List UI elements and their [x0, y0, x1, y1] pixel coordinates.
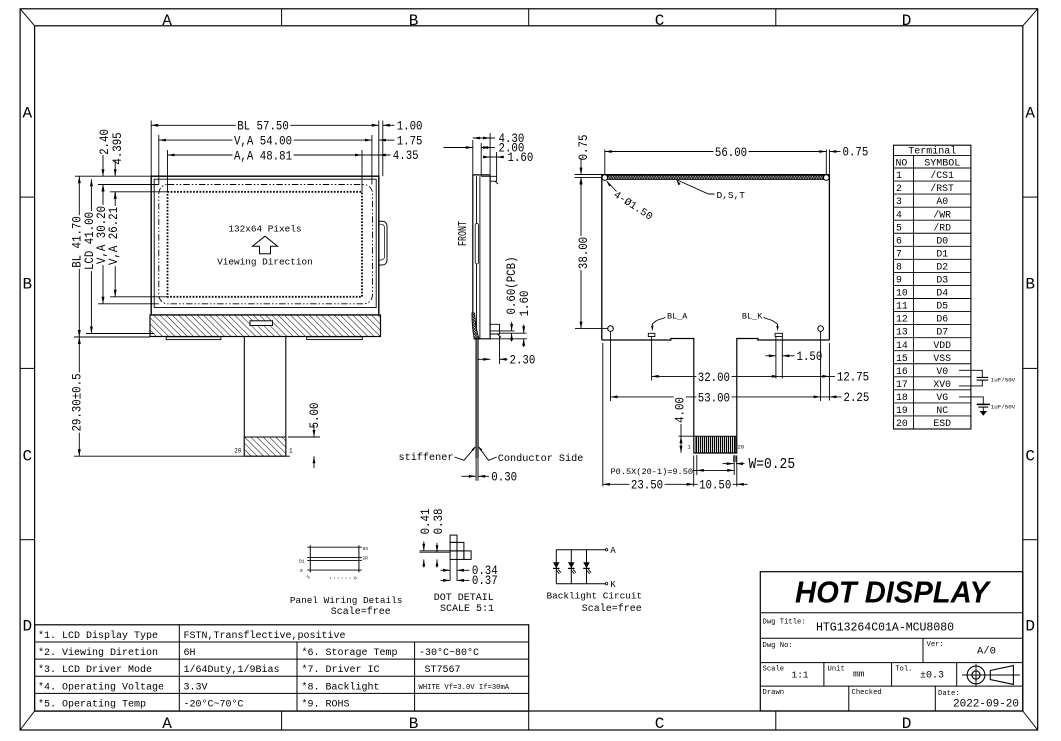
svg-text:Drawn: Drawn: [763, 689, 785, 697]
svg-text:D2: D2: [936, 261, 948, 272]
svg-text:1: 1: [896, 170, 902, 181]
svg-text:NC: NC: [936, 405, 948, 416]
svg-text:A: A: [22, 105, 32, 123]
svg-text:38.00: 38.00: [576, 237, 591, 269]
svg-text:A: A: [610, 546, 616, 556]
svg-text:1uF/50V: 1uF/50V: [991, 377, 1016, 384]
svg-text:P0.5X(20-1)=9.50: P0.5X(20-1)=9.50: [611, 467, 694, 477]
svg-text:HOT DISPLAY: HOT DISPLAY: [795, 575, 992, 610]
svg-text:A0: A0: [936, 196, 948, 207]
svg-text:V,A 54.00: V,A 54.00: [234, 134, 292, 149]
svg-text:10.50: 10.50: [699, 478, 731, 493]
svg-text:FRONT: FRONT: [457, 221, 470, 246]
svg-text:13: 13: [896, 327, 908, 338]
svg-text:SCALE 5:1: SCALE 5:1: [440, 604, 494, 615]
svg-text:WHITE Vf=3.0V If=30mA: WHITE Vf=3.0V If=30mA: [419, 684, 510, 692]
svg-text:D3: D3: [936, 275, 948, 286]
svg-text:1.00: 1.00: [397, 119, 423, 134]
svg-text:C: C: [1025, 448, 1035, 466]
svg-text:4: 4: [896, 209, 902, 220]
svg-text:DOT DETAIL: DOT DETAIL: [434, 593, 494, 604]
svg-text:Tol.: Tol.: [895, 665, 912, 673]
svg-text:±0.3: ±0.3: [920, 671, 944, 682]
svg-text:*6. Storage Temp: *6. Storage Temp: [302, 647, 398, 659]
svg-text:Scale=free: Scale=free: [331, 606, 391, 618]
svg-text:Scale=free: Scale=free: [582, 603, 642, 615]
svg-text:D: D: [1025, 618, 1035, 636]
svg-text:Scale: Scale: [763, 665, 785, 673]
svg-text:14: 14: [896, 340, 908, 351]
svg-text:D1: D1: [299, 559, 305, 565]
svg-text:2R: 2R: [363, 556, 369, 562]
svg-text:BL 57.50: BL 57.50: [237, 119, 289, 134]
svg-text:2022-09-20: 2022-09-20: [953, 699, 1019, 711]
svg-text:Backlight Circuit: Backlight Circuit: [546, 590, 642, 601]
svg-text:D: D: [902, 715, 912, 733]
svg-text:20: 20: [234, 448, 242, 455]
svg-text:0.37: 0.37: [472, 573, 498, 588]
svg-text:XV0: XV0: [933, 379, 951, 390]
svg-text:4.395: 4.395: [110, 132, 125, 164]
svg-text:D: D: [22, 618, 32, 636]
svg-text:1.60: 1.60: [508, 150, 534, 165]
svg-text:Terminal: Terminal: [908, 145, 956, 157]
svg-text:B: B: [409, 715, 419, 733]
svg-text:A: A: [1025, 105, 1035, 123]
svg-text:S: S: [300, 568, 303, 574]
svg-text:8S: 8S: [363, 546, 369, 552]
svg-text:HTG13264C01A-MCU8080: HTG13264C01A-MCU8080: [816, 622, 954, 635]
svg-text:Date:: Date:: [938, 690, 960, 698]
svg-text:0.30: 0.30: [491, 469, 517, 484]
svg-text:5.00: 5.00: [307, 403, 322, 429]
svg-text:0.41: 0.41: [419, 509, 433, 535]
svg-text:ST7567: ST7567: [425, 665, 461, 676]
svg-text:1: 1: [289, 448, 293, 455]
svg-text:-30°C~80°C: -30°C~80°C: [419, 647, 479, 659]
svg-text:D: D: [902, 12, 912, 30]
svg-text:BL_K: BL_K: [742, 311, 763, 321]
svg-text:2.30: 2.30: [510, 352, 536, 367]
svg-text:D0: D0: [936, 235, 948, 246]
svg-text:VDD: VDD: [933, 340, 951, 351]
svg-text:B: B: [22, 276, 32, 294]
svg-text:V,A 26.21: V,A 26.21: [106, 207, 121, 265]
svg-text:*5. Operating Temp: *5. Operating Temp: [38, 698, 146, 710]
svg-text:23.50: 23.50: [631, 478, 663, 493]
svg-text:2.25: 2.25: [844, 390, 870, 405]
svg-text:56.00: 56.00: [715, 145, 747, 160]
svg-text:A/0: A/0: [977, 646, 996, 658]
svg-text:ESD: ESD: [933, 418, 951, 429]
svg-text:Dwg Title:: Dwg Title:: [763, 619, 806, 627]
svg-text:8: 8: [896, 261, 902, 272]
svg-text:12.75: 12.75: [837, 370, 869, 385]
svg-text:D,S,T: D,S,T: [717, 190, 746, 201]
svg-text:D4: D4: [936, 288, 948, 299]
svg-text:B: B: [409, 12, 419, 30]
svg-text:16: 16: [896, 366, 908, 377]
svg-text:19: 19: [896, 405, 908, 416]
svg-text:20: 20: [896, 418, 908, 429]
svg-text:1.75: 1.75: [397, 133, 423, 148]
svg-text:0.38: 0.38: [432, 509, 446, 535]
svg-text:3.3V: 3.3V: [184, 682, 208, 693]
svg-text:A: A: [162, 12, 172, 30]
svg-text:D5: D5: [936, 301, 948, 312]
svg-text:stiffener: stiffener: [398, 452, 453, 464]
svg-text:/RST: /RST: [930, 183, 954, 194]
svg-text:D6: D6: [936, 314, 948, 325]
svg-text:Ver:: Ver:: [927, 641, 944, 649]
svg-text:D7: D7: [936, 327, 948, 338]
svg-text:1:1: 1:1: [792, 670, 809, 681]
svg-text:29.30±0.5: 29.30±0.5: [70, 373, 85, 431]
svg-text:*1. LCD Display Type: *1. LCD Display Type: [38, 630, 158, 642]
svg-text:6H: 6H: [184, 648, 196, 659]
svg-text:0.60(PCB): 0.60(PCB): [505, 256, 519, 314]
svg-text:*4. Operating Voltage: *4. Operating Voltage: [38, 681, 164, 693]
svg-text:11: 11: [896, 301, 908, 312]
svg-text:FSTN,Transflective,positive: FSTN,Transflective,positive: [184, 630, 346, 642]
svg-text:*9. ROHS: *9. ROHS: [302, 698, 350, 710]
svg-text:Dwg No:: Dwg No:: [763, 642, 793, 650]
svg-text:53.00: 53.00: [698, 390, 730, 405]
svg-text:C: C: [655, 12, 665, 30]
svg-text:C: C: [655, 715, 665, 733]
svg-text:Unit: Unit: [828, 665, 845, 673]
svg-text:K: K: [610, 580, 616, 590]
svg-text:Panel Wiring Details: Panel Wiring Details: [290, 595, 403, 606]
svg-text:10: 10: [896, 288, 908, 299]
svg-text:A: A: [162, 715, 172, 733]
svg-text:VG: VG: [936, 392, 948, 403]
svg-text:2: 2: [896, 183, 902, 194]
svg-text:Conductor Side: Conductor Side: [498, 453, 584, 465]
svg-text:0.75: 0.75: [576, 135, 591, 161]
svg-text:......: ......: [329, 574, 352, 581]
svg-text:*3. LCD Driver Mode: *3. LCD Driver Mode: [38, 664, 152, 676]
svg-text:15: 15: [896, 353, 908, 364]
svg-text:1/64Duty,1/9Bias: 1/64Duty,1/9Bias: [184, 664, 280, 676]
svg-text:4.00: 4.00: [673, 397, 688, 423]
svg-text:V0: V0: [936, 366, 948, 377]
svg-text:*7. Driver IC: *7. Driver IC: [302, 664, 380, 676]
svg-text:B: B: [1025, 276, 1035, 294]
svg-text:Viewing Direction: Viewing Direction: [217, 257, 313, 268]
svg-text:D1: D1: [936, 248, 948, 259]
svg-text:20: 20: [737, 443, 744, 450]
svg-text:132x64 Pixels: 132x64 Pixels: [228, 224, 301, 235]
svg-text:BL_A: BL_A: [667, 311, 688, 321]
svg-text:/CS1: /CS1: [930, 170, 954, 181]
svg-text:18: 18: [896, 392, 908, 403]
svg-text:6: 6: [896, 235, 902, 246]
svg-text:32.00: 32.00: [698, 370, 730, 385]
svg-text:C: C: [22, 448, 32, 466]
svg-text:W=0.25: W=0.25: [749, 457, 796, 473]
svg-text:1uF/50V: 1uF/50V: [991, 404, 1016, 411]
svg-text:NO: NO: [896, 157, 908, 168]
svg-text:7: 7: [896, 248, 902, 259]
svg-text:/RD: /RD: [933, 222, 951, 233]
svg-text:*2. Viewing Diretion: *2. Viewing Diretion: [38, 647, 158, 659]
svg-text:-20°C~70°C: -20°C~70°C: [184, 698, 244, 710]
svg-text:*8. Backlight: *8. Backlight: [302, 681, 380, 693]
svg-text:17: 17: [896, 379, 908, 390]
svg-text:0.75: 0.75: [843, 145, 869, 160]
svg-text:mm: mm: [853, 669, 865, 680]
svg-text:4.35: 4.35: [393, 148, 419, 163]
svg-text:1.50: 1.50: [797, 349, 823, 364]
svg-text:Checked: Checked: [852, 689, 882, 697]
svg-text:1.60: 1.60: [518, 291, 532, 317]
svg-text:9: 9: [896, 275, 902, 286]
svg-text:SYMBOL: SYMBOL: [924, 159, 960, 170]
svg-text:3: 3: [896, 196, 902, 207]
svg-text:12: 12: [896, 314, 908, 325]
svg-text:5: 5: [896, 222, 902, 233]
svg-text:/WR: /WR: [933, 209, 951, 220]
svg-text:VSS: VSS: [933, 353, 951, 364]
svg-text:A,A 48.81: A,A 48.81: [234, 148, 292, 163]
